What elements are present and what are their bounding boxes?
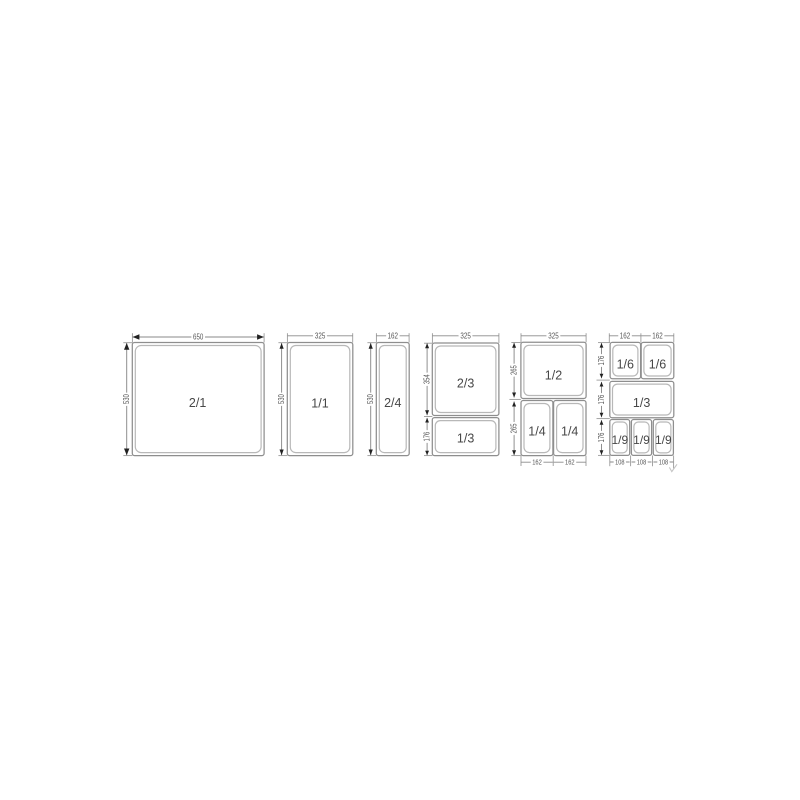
- svg-text:162: 162: [532, 458, 542, 467]
- svg-text:1/6: 1/6: [617, 358, 634, 372]
- svg-text:162: 162: [388, 331, 399, 340]
- svg-text:650: 650: [193, 333, 204, 342]
- svg-text:1/9: 1/9: [655, 433, 672, 447]
- svg-text:162: 162: [565, 458, 575, 467]
- svg-text:354: 354: [423, 374, 432, 384]
- svg-text:1/4: 1/4: [528, 425, 545, 439]
- svg-text:1/6: 1/6: [649, 358, 666, 372]
- svg-text:1/3: 1/3: [633, 396, 650, 410]
- svg-text:1/3: 1/3: [457, 432, 474, 446]
- svg-text:1/9: 1/9: [611, 433, 628, 447]
- svg-text:2/3: 2/3: [457, 376, 474, 390]
- svg-text:2/4: 2/4: [384, 396, 401, 410]
- svg-text:1/9: 1/9: [633, 433, 650, 447]
- svg-text:108: 108: [659, 458, 668, 467]
- svg-text:1/1: 1/1: [311, 396, 328, 410]
- svg-text:108: 108: [615, 458, 624, 467]
- svg-text:162: 162: [652, 331, 663, 340]
- svg-text:530: 530: [277, 394, 286, 404]
- svg-text:265: 265: [510, 423, 519, 433]
- svg-text:265: 265: [510, 365, 519, 375]
- svg-text:176: 176: [597, 355, 606, 365]
- svg-text:325: 325: [548, 331, 559, 340]
- svg-text:530: 530: [366, 394, 375, 404]
- svg-text:1/4: 1/4: [561, 425, 578, 439]
- svg-text:325: 325: [315, 331, 326, 340]
- svg-text:530: 530: [122, 394, 131, 404]
- svg-text:108: 108: [637, 458, 646, 467]
- svg-text:2/1: 2/1: [189, 396, 206, 410]
- svg-text:176: 176: [597, 394, 606, 404]
- svg-text:176: 176: [423, 431, 432, 441]
- svg-text:1/2: 1/2: [545, 368, 562, 382]
- svg-text:162: 162: [620, 331, 631, 340]
- svg-text:176: 176: [597, 432, 606, 442]
- svg-text:325: 325: [460, 331, 471, 340]
